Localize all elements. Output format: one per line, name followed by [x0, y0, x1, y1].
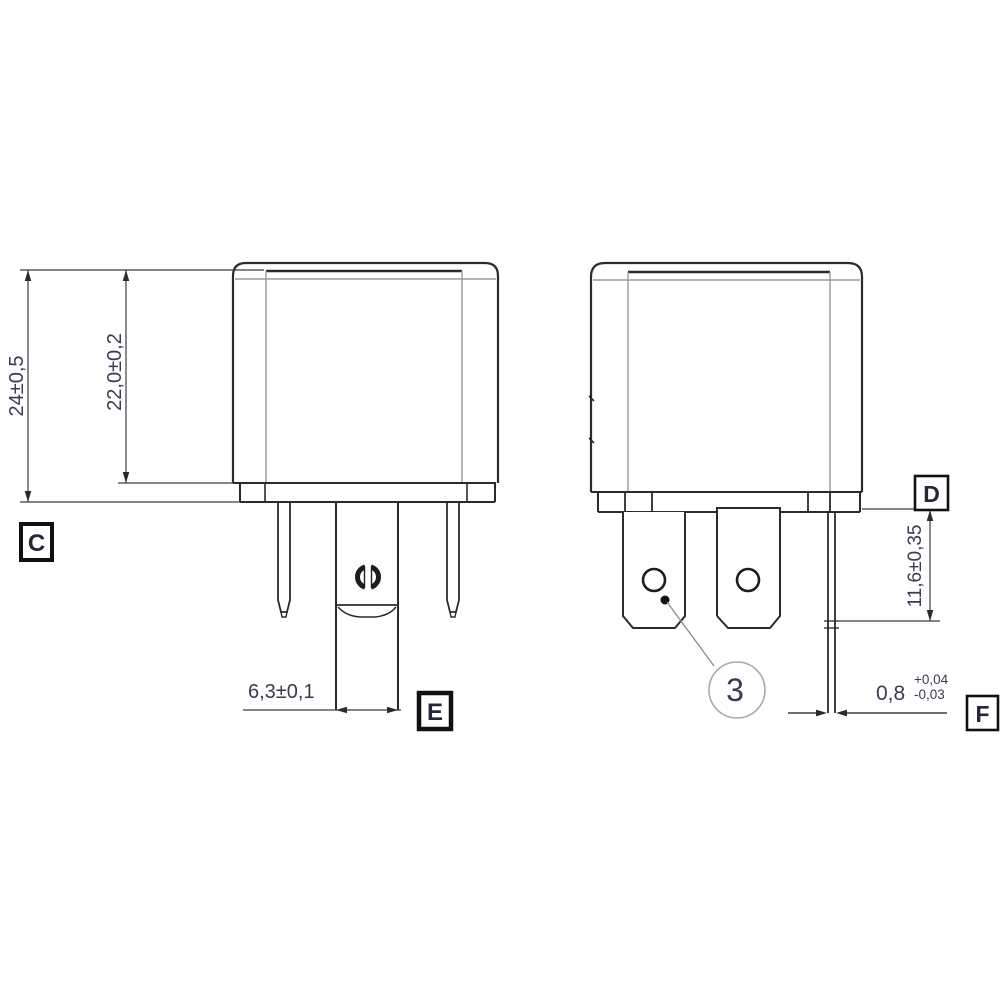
dim-overall-height: 24±0,5 [6, 270, 264, 502]
dim-text-08: 0,8 [876, 682, 905, 705]
datum-f: F [967, 696, 998, 730]
datum-e-letter: E [427, 699, 443, 726]
dim-blade-width: 6,3±0,1 [243, 681, 401, 713]
dim-text-22: 22,0±0,2 [104, 333, 126, 411]
balloon-leader-line [667, 602, 714, 666]
blade-hole [737, 569, 759, 591]
arrow-left [336, 707, 347, 714]
balloon-number: 3 [726, 672, 744, 708]
left-view: 24±0,5 22,0±0,2 6,3±0,1 C E [6, 263, 498, 729]
arrow-down [927, 610, 934, 621]
dim-text-63: 6,3±0,1 [248, 681, 315, 703]
arrow-up [25, 270, 32, 281]
left-view-center-blade [336, 502, 398, 710]
arrow-right [387, 707, 398, 714]
arrow-down [123, 472, 130, 483]
datum-f-letter: F [975, 701, 989, 727]
datum-e: E [419, 693, 451, 729]
left-view-pin-left [278, 502, 290, 612]
arrow-left [836, 710, 847, 717]
dim-text-116: 11,6±0,35 [905, 525, 926, 608]
left-view-pin-right [447, 502, 459, 612]
dim-terminal-length: 11,6±0,35 [839, 509, 940, 621]
arrow-up [123, 270, 130, 281]
dim-blade-thickness: 0,8 +0,04 -0,03 [788, 672, 949, 716]
right-view-blade-left [623, 512, 685, 628]
dim-text-24: 24±0,5 [6, 355, 28, 416]
technical-drawing-page: 24±0,5 22,0±0,2 6,3±0,1 C E [0, 0, 1000, 1000]
right-view-body-outline [591, 263, 862, 492]
blade-groove-arc [338, 607, 396, 617]
left-view-body-outline [233, 263, 498, 483]
datum-d-letter: D [923, 481, 940, 507]
blade-hole [643, 569, 665, 591]
blade-slot-hole [358, 563, 379, 591]
arrow-down [25, 491, 32, 502]
right-view-blade-thin [824, 512, 839, 713]
right-view: 3 11,6±0,35 0,8 +0,04 -0,03 D [589, 263, 998, 730]
arrow-up [927, 510, 934, 521]
left-view-base-flange [240, 483, 495, 502]
datum-c: C [21, 524, 52, 560]
datum-d: D [915, 476, 948, 510]
dim-body-height: 22,0±0,2 [104, 270, 234, 483]
relay-drawing-svg: 24±0,5 22,0±0,2 6,3±0,1 C E [0, 0, 1000, 1000]
dim-text-08-tol-lower: -0,03 [914, 687, 945, 702]
right-view-blade-right [717, 508, 780, 628]
hole-slot-gap [365, 563, 372, 591]
arrow-right [816, 710, 827, 717]
dim-text-08-tol-upper: +0,04 [914, 672, 949, 687]
datum-c-letter: C [28, 530, 45, 557]
